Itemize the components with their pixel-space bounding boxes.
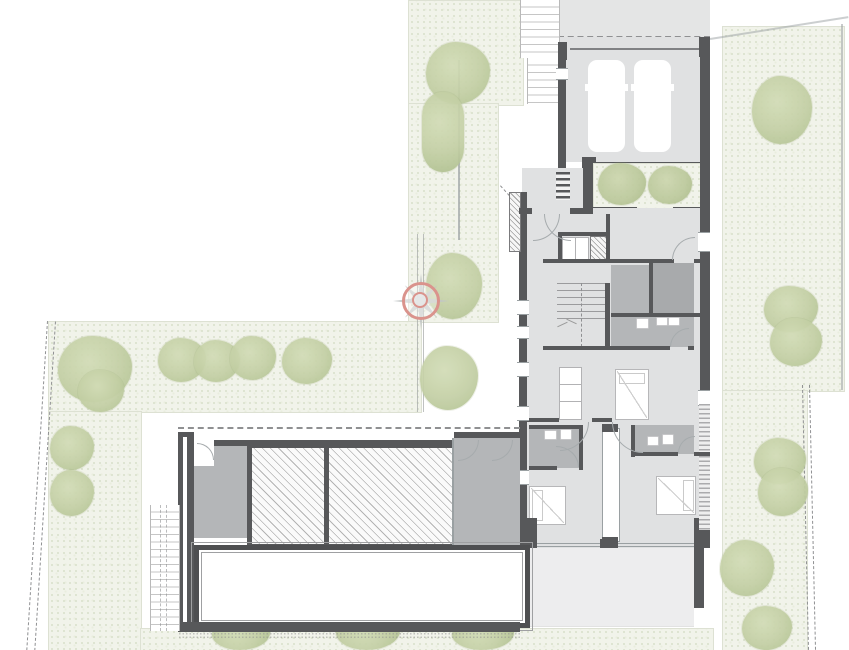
glass-mullion bbox=[600, 539, 618, 548]
bed-fold-line bbox=[658, 478, 694, 513]
central-closet bbox=[602, 428, 620, 542]
car-mirror-icon bbox=[631, 84, 635, 91]
driveway bbox=[558, 0, 710, 37]
window bbox=[556, 68, 568, 80]
window bbox=[517, 300, 529, 315]
window-louver bbox=[699, 456, 710, 530]
skylight bbox=[324, 443, 462, 549]
car-mirror-icon bbox=[670, 84, 674, 91]
side-landing bbox=[522, 168, 583, 208]
wall-segment bbox=[592, 418, 612, 422]
court-left-wall bbox=[583, 158, 593, 214]
garage-right-wall bbox=[700, 37, 710, 170]
room-fill bbox=[651, 263, 694, 315]
sink-icon bbox=[656, 317, 668, 326]
wall-segment bbox=[610, 346, 670, 350]
stair-wall bbox=[605, 283, 610, 350]
sink-icon bbox=[544, 430, 557, 440]
glass-door-line bbox=[618, 543, 694, 544]
bed-icon bbox=[656, 476, 696, 515]
toilet-icon bbox=[636, 318, 649, 329]
wall-segment bbox=[519, 208, 532, 214]
wall-segment bbox=[606, 214, 610, 263]
wall-segment bbox=[649, 263, 653, 316]
wall-segment bbox=[543, 259, 610, 263]
north-compass bbox=[393, 273, 449, 329]
garden-stair bbox=[150, 505, 180, 631]
room-fill bbox=[611, 265, 649, 315]
wardrobe-shelf-hatched bbox=[590, 236, 607, 261]
floor-plan-canvas bbox=[0, 0, 849, 650]
tree-icon bbox=[420, 346, 478, 410]
toilet-icon bbox=[662, 434, 674, 445]
window bbox=[517, 326, 529, 339]
hedge-icon bbox=[422, 92, 464, 172]
garage-side-steps bbox=[556, 172, 570, 200]
compass-inner-ring bbox=[412, 292, 428, 308]
wing-wall-core bbox=[183, 437, 187, 627]
glass-door-line bbox=[618, 546, 694, 547]
entry-pillar-hatched bbox=[509, 192, 521, 252]
wall-segment bbox=[610, 259, 674, 263]
window bbox=[517, 406, 529, 421]
wall-segment bbox=[694, 518, 704, 608]
bed-fold-line bbox=[617, 371, 647, 418]
skylight bbox=[247, 443, 334, 549]
gravel-strip bbox=[178, 632, 520, 639]
wall-segment bbox=[454, 432, 520, 438]
wall-segment bbox=[611, 313, 700, 317]
wall-segment bbox=[529, 466, 557, 470]
window bbox=[517, 362, 529, 377]
window-louver bbox=[699, 404, 710, 452]
wall-segment bbox=[527, 418, 559, 422]
garage-left-wall bbox=[558, 42, 566, 168]
wall-segment bbox=[570, 208, 593, 214]
glass-door-line bbox=[537, 543, 600, 544]
boundary-right-line bbox=[841, 24, 843, 390]
terrace bbox=[526, 548, 694, 627]
wardrobe-shelf bbox=[575, 237, 589, 260]
wall-pier bbox=[527, 518, 537, 548]
stair-guide-dashed bbox=[160, 505, 161, 631]
sink-icon bbox=[668, 317, 680, 326]
stair-center-dashed bbox=[581, 283, 582, 347]
bed-icon bbox=[615, 369, 649, 420]
glass-door-line bbox=[537, 546, 600, 547]
entry-steps-upper bbox=[520, 0, 560, 58]
garage-rear-wall bbox=[570, 48, 700, 50]
wall-segment bbox=[543, 346, 610, 350]
wing-bottom-wall bbox=[178, 622, 520, 632]
lap-pool bbox=[194, 545, 530, 628]
stair-guide-dashed bbox=[166, 505, 167, 631]
car-mirror-icon bbox=[624, 84, 628, 91]
car-icon bbox=[588, 60, 625, 152]
wing-roof-overhang-line bbox=[178, 427, 520, 429]
car-icon bbox=[634, 60, 671, 152]
closet-shelf bbox=[559, 401, 582, 420]
sink-icon bbox=[647, 436, 659, 446]
car-mirror-icon bbox=[585, 84, 589, 91]
window bbox=[698, 232, 710, 252]
entry-steps-lower bbox=[527, 58, 560, 104]
